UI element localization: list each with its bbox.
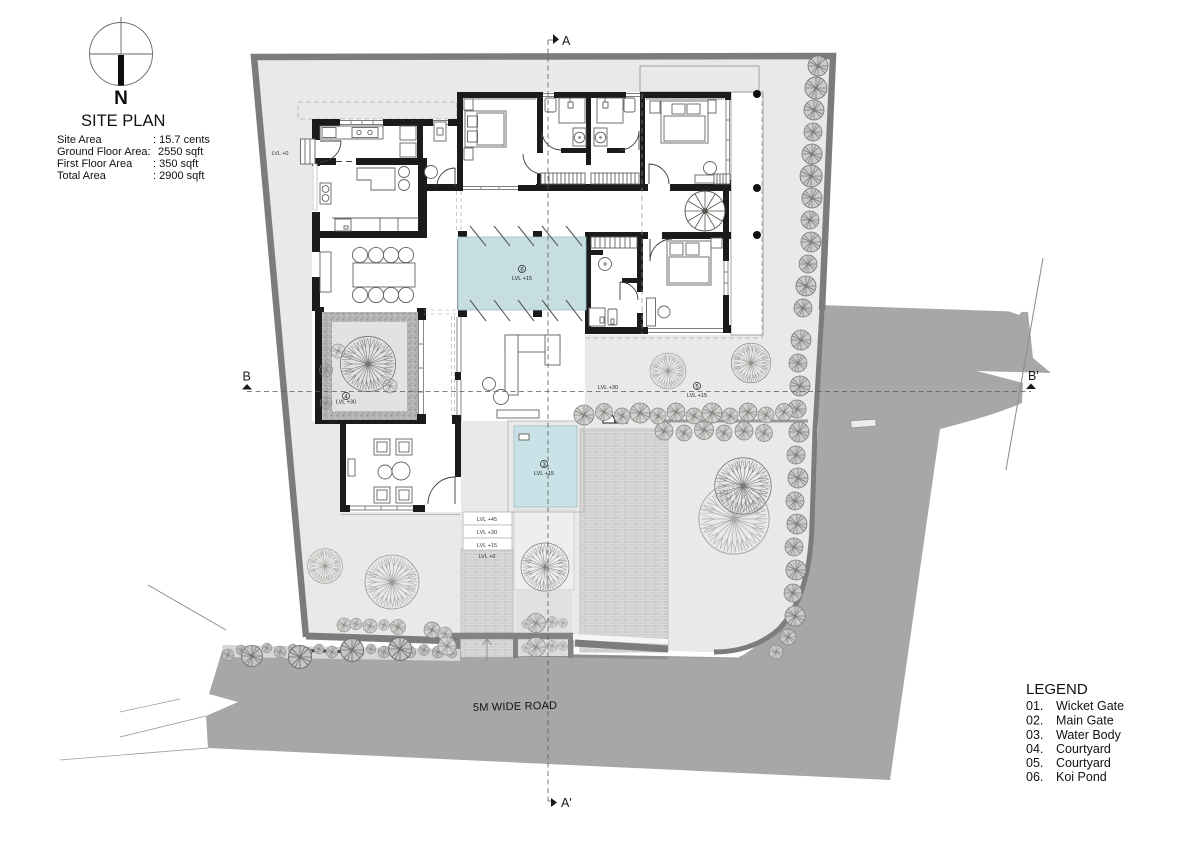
svg-text:LVL +0: LVL +0 [272, 151, 289, 157]
svg-text:LVL +45: LVL +45 [477, 517, 497, 523]
svg-text:Main Gate: Main Gate [1056, 714, 1114, 728]
svg-text:LVL +30: LVL +30 [336, 400, 356, 406]
svg-text:LVL +15: LVL +15 [534, 471, 554, 477]
svg-text:06.: 06. [1026, 770, 1043, 784]
svg-text:04.: 04. [1026, 742, 1043, 756]
svg-text:5M WIDE ROAD: 5M WIDE ROAD [473, 700, 558, 714]
svg-text:LVL +15: LVL +15 [687, 393, 707, 399]
svg-text:Total Area: Total Area [57, 170, 107, 182]
svg-text:03.: 03. [1026, 728, 1043, 742]
svg-text:Wicket Gate: Wicket Gate [1056, 699, 1124, 713]
svg-text:: 2900 sqft: : 2900 sqft [153, 170, 204, 182]
svg-text:Water Body: Water Body [1056, 728, 1122, 742]
svg-text:01.: 01. [1026, 699, 1043, 713]
svg-text:LVL +15: LVL +15 [512, 276, 532, 282]
svg-text:SITE PLAN: SITE PLAN [81, 112, 165, 130]
svg-text:First Floor Area: First Floor Area [57, 158, 133, 170]
svg-text:Site Area: Site Area [57, 134, 103, 146]
svg-text:Ground Floor Area:: Ground Floor Area: [57, 146, 151, 158]
svg-text:LVL +30: LVL +30 [598, 385, 618, 391]
svg-text:B': B' [1028, 369, 1039, 383]
svg-text:LVL +0: LVL +0 [479, 554, 496, 560]
svg-text:Courtyard: Courtyard [1056, 742, 1111, 756]
svg-text:LVL +15: LVL +15 [477, 543, 497, 549]
svg-text:B: B [243, 370, 251, 384]
svg-text:: 350 sqft: : 350 sqft [153, 158, 198, 170]
svg-text:2550 sqft: 2550 sqft [158, 146, 203, 158]
svg-text:N: N [114, 88, 128, 109]
svg-text:Courtyard: Courtyard [1056, 756, 1111, 770]
svg-text:LEGEND: LEGEND [1026, 681, 1088, 698]
svg-text:05.: 05. [1026, 756, 1043, 770]
svg-text:LVL +30: LVL +30 [477, 530, 497, 536]
svg-text:A': A' [561, 796, 572, 810]
svg-text:: 15.7 cents: : 15.7 cents [153, 134, 210, 146]
svg-text:Koi Pond: Koi Pond [1056, 770, 1107, 784]
svg-text:02.: 02. [1026, 714, 1043, 728]
svg-text:A: A [562, 34, 571, 48]
